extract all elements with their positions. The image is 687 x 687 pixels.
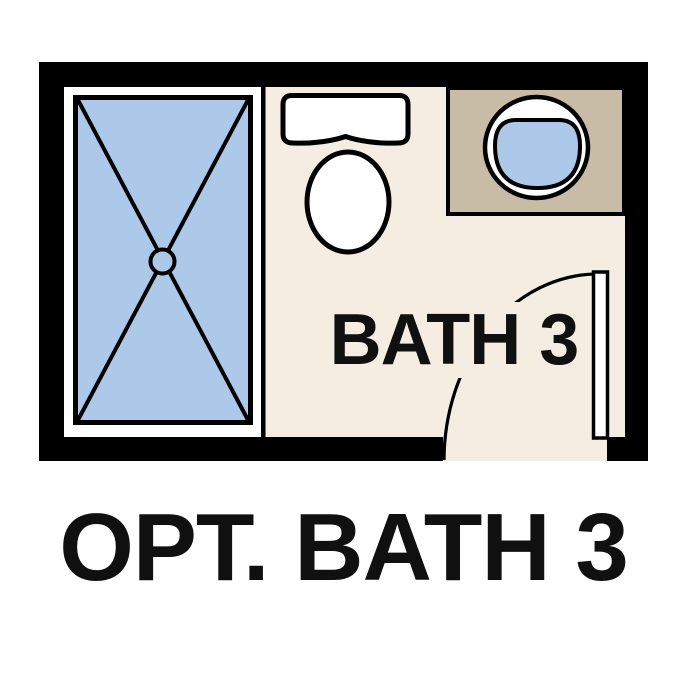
toilet-tank bbox=[283, 96, 408, 144]
door-opening-gap bbox=[443, 436, 607, 461]
shower-icon bbox=[76, 98, 251, 423]
plan-caption: OPT. BATH 3 bbox=[0, 498, 687, 598]
room-label: BATH 3 bbox=[317, 302, 591, 378]
sink-basin bbox=[495, 120, 580, 188]
partition-line bbox=[261, 87, 266, 437]
sink-vanity-icon bbox=[448, 88, 624, 214]
toilet-bowl bbox=[307, 152, 389, 252]
shower-drain-icon bbox=[151, 250, 175, 274]
floor-plan-figure: BATH 3 OPT. BATH 3 bbox=[0, 0, 687, 687]
door-leaf bbox=[594, 272, 608, 438]
